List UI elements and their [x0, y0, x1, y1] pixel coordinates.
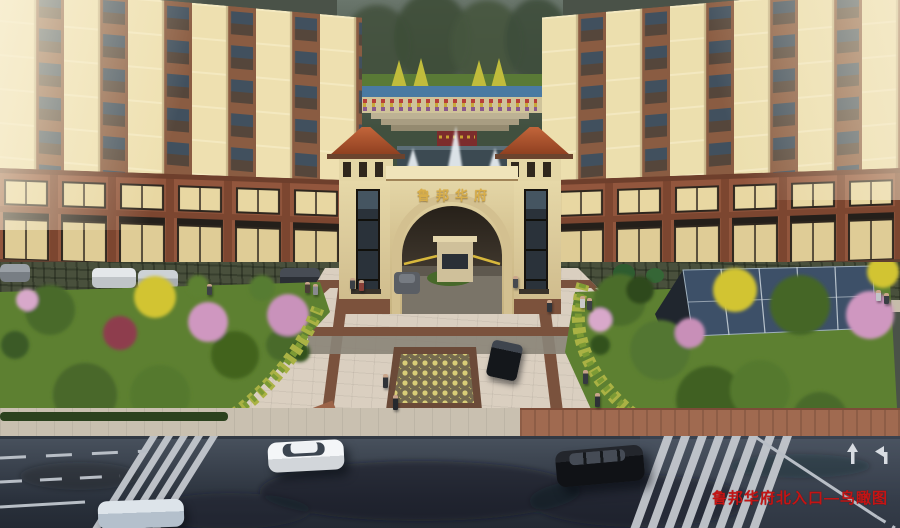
pedestrian [884, 293, 889, 304]
white-sedan [267, 439, 344, 473]
booth-window [442, 254, 468, 269]
tower-base [339, 299, 393, 314]
pedestrian [513, 276, 518, 288]
black-suv [555, 444, 646, 488]
pedestrian [876, 290, 881, 301]
tower-body [339, 181, 393, 314]
pedestrian [547, 300, 552, 312]
pedestrian [359, 280, 364, 291]
loggia-openings [343, 162, 389, 177]
blossom-tree [16, 289, 38, 311]
tower-canopy [519, 289, 549, 294]
suv-glass [569, 449, 626, 466]
tower-window-strip [356, 189, 380, 293]
watermark-caption: 鲁邦华府北入口—鸟瞰图 [712, 487, 897, 508]
blossom-tree [188, 302, 228, 342]
pedestrian [313, 284, 318, 295]
pedestrian [580, 296, 585, 308]
tower-loggia [339, 159, 393, 181]
red-leaf-tree [103, 316, 137, 350]
booth-roof [433, 236, 477, 242]
pedestrian [393, 395, 398, 410]
gate-sign: 鲁邦华府 [390, 185, 514, 204]
tower-canopy [351, 289, 381, 294]
tower-body [507, 181, 561, 314]
sedan-roof [290, 441, 318, 453]
ginkgo-tree [134, 276, 176, 318]
reflecting-pool [347, 86, 553, 97]
tower-base [507, 299, 561, 314]
pedestrian [595, 393, 600, 407]
pedestrian [383, 374, 388, 388]
aerial-rendering-scene: 鲁邦华府 鲁邦华府北入口—鸟瞰图 [0, 0, 900, 528]
pedestrian [207, 284, 212, 295]
pedestrian [305, 282, 310, 293]
tower-roof [498, 127, 570, 155]
gate-wall: 鲁邦华府 [390, 166, 514, 314]
tower-window-strip [524, 189, 548, 293]
pedestrian [350, 278, 355, 289]
sidewalk [0, 408, 900, 438]
blue-sedan [98, 499, 185, 528]
tower-roof [330, 127, 402, 155]
pedestrian [583, 370, 588, 384]
blossom-bush [675, 318, 705, 348]
hedge-strip [0, 412, 228, 421]
entrance-gate: 鲁邦华府 [330, 118, 570, 314]
ginkgo-tree [713, 268, 757, 312]
blossom-tree [588, 308, 612, 332]
gate-tower-left [337, 127, 395, 314]
pedestrian [587, 298, 592, 310]
